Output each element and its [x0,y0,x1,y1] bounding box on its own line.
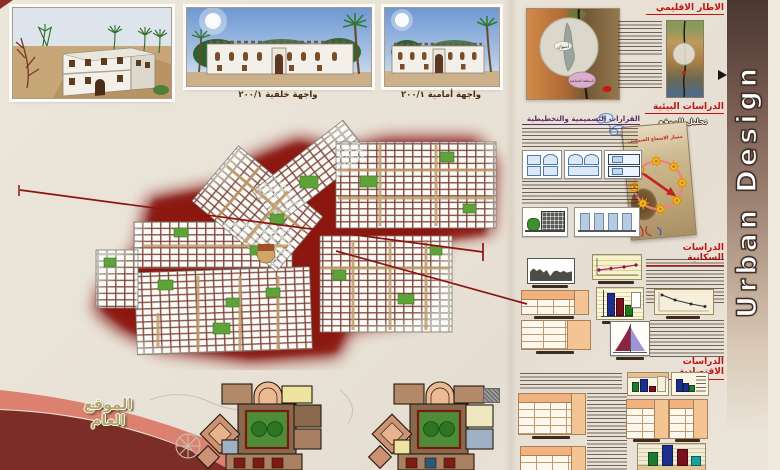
population-pyramid [610,321,650,356]
sketch-card-pillars [574,207,640,237]
econ-bar-card-a [627,372,669,396]
population-table-2 [521,320,591,350]
regional-title: الاطار الاقليمي [646,3,724,15]
population-pyramid-caption [616,357,644,360]
population-table-2-caption [536,351,574,354]
rendering-front-elevation [384,7,500,87]
econ-table-left-1 [518,393,586,435]
pyramid-right [630,325,645,351]
chart-line-growth [592,254,642,280]
regional-paragraph-1 [618,21,662,55]
econ-table-right-1-caption [633,439,660,442]
chart-bars-population [596,287,644,320]
sketch-card-section [522,207,568,237]
econ-text-column [587,393,627,470]
environmental-paragraph-1 [522,128,638,148]
sketch-card-3 [604,150,642,179]
regional-paragraph-2 [618,62,662,88]
floor-plan-1 [196,378,334,470]
map-zone-label: المنطقة الصناعية [570,79,594,83]
chart-area [527,258,575,284]
rendering-back-elevation [186,7,372,87]
chart-area-caption [532,285,568,288]
population-bullets [650,320,724,358]
map-city-label: أسوان [557,43,569,50]
front-elevation-scene [385,8,499,86]
population-table-1 [521,290,589,315]
site-plan [8,118,508,370]
right-margin [768,0,780,470]
chart-line-decline-caption [666,316,700,319]
econ-table-left-2 [520,446,586,470]
banner-title: Urban Design [731,18,764,318]
sketch-card-2 [564,150,602,179]
site-plan-label: الموقع العام [64,397,152,429]
chart-line-growth-caption [598,281,634,284]
banner-strip: Urban Design [727,0,768,470]
legend-hatch-block [483,388,500,403]
econ-table-left-1-caption [532,436,570,439]
econ-bar-card-b [671,372,709,396]
back-elevation-caption: واجهة خلفية ٢٠٠/١ [186,90,370,102]
economic-paragraph [520,373,622,389]
econ-table-right-2 [669,399,708,439]
environmental-paragraph-2 [522,181,638,204]
econ-bar-chart-bottom [637,443,706,470]
back-elevation-scene [187,8,371,86]
regional-map: أسوان المنطقة الصناعية [526,8,620,100]
regional-strip-map [666,20,704,98]
chart-line-decline [654,289,714,315]
front-elevation-caption: واجهة أمامية ٢٠٠/١ [384,90,498,102]
perspective-scene [13,8,171,98]
rendering-perspective [12,7,172,99]
decisions-title: القرارات التصميمية والتخطيطية [522,114,640,125]
environmental-title: الدراسات البيئية [645,102,724,114]
pointer-triangle-icon [718,70,727,80]
econ-table-right-1 [626,399,669,439]
sketch-card-1 [522,150,562,179]
presentation-board: واجهة خلفية ٢٠٠/١ واجهة أمامية ٢٠٠/١ Urb… [0,0,780,470]
econ-table-right-2-caption [675,439,700,442]
sun-icon [676,176,689,189]
population-table-1-caption [534,316,574,319]
pyramid-left [615,325,630,351]
